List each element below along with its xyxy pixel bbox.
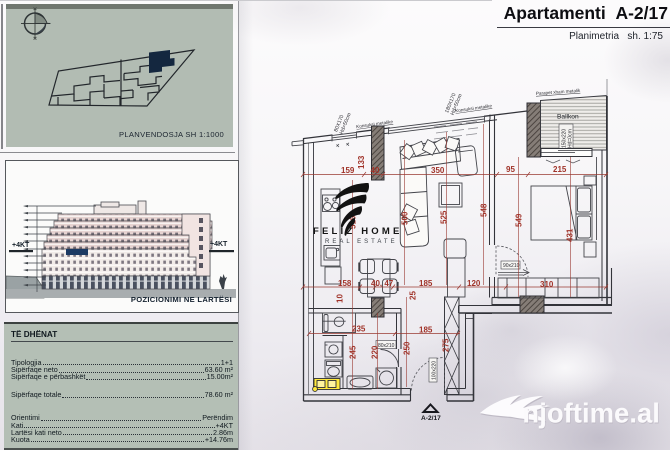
svg-text:Parapet xham metalik: Parapet xham metalik: [536, 88, 581, 96]
svg-text:40: 40: [371, 166, 380, 175]
svg-text:235: 235: [352, 325, 366, 334]
svg-text:250: 250: [403, 341, 412, 355]
svg-text:njoftime.al: njoftime.al: [522, 398, 660, 429]
svg-text:549: 549: [515, 213, 524, 227]
svg-text:185: 185: [419, 279, 433, 288]
svg-text:158: 158: [338, 279, 352, 288]
svg-text:245: 245: [349, 345, 358, 359]
svg-text:Hd=0cm: Hd=0cm: [568, 129, 574, 148]
svg-text:REAL ESTATE: REAL ESTATE: [325, 239, 398, 245]
svg-text:25: 25: [409, 291, 418, 300]
svg-text:120: 120: [467, 279, 481, 288]
svg-text:525: 525: [440, 210, 449, 224]
svg-text:275: 275: [442, 338, 451, 352]
svg-text:310: 310: [540, 280, 554, 289]
svg-text:10: 10: [336, 294, 345, 303]
svg-text:95: 95: [506, 165, 515, 174]
svg-text:548: 548: [480, 203, 489, 217]
svg-text:90x210: 90x210: [503, 263, 520, 269]
svg-text:100x220: 100x220: [431, 361, 437, 380]
svg-text:40, 47: 40, 47: [371, 279, 394, 288]
svg-text:215: 215: [553, 165, 567, 174]
svg-text:500: 500: [401, 211, 410, 225]
svg-text:Konsuksi metalike: Konsuksi metalike: [455, 103, 493, 113]
svg-text:133: 133: [357, 155, 366, 169]
svg-text:350: 350: [431, 166, 445, 175]
svg-text:431: 431: [566, 228, 575, 242]
svg-text:80x210: 80x210: [378, 343, 395, 349]
svg-text:Ballkon: Ballkon: [557, 114, 579, 121]
svg-text:159: 159: [341, 166, 355, 175]
svg-text:FELIZ HOME: FELIZ HOME: [313, 226, 403, 237]
svg-text:220: 220: [371, 345, 380, 359]
svg-text:A-2/17: A-2/17: [421, 415, 441, 422]
svg-text:185: 185: [419, 326, 433, 335]
